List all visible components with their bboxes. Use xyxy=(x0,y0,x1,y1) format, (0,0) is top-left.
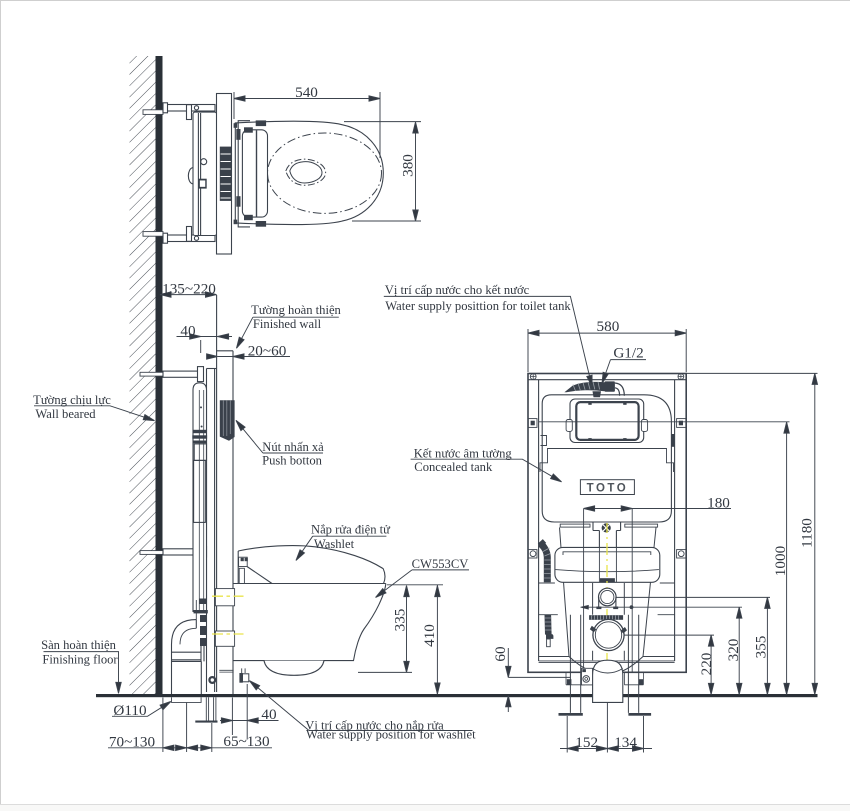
svg-text:1000: 1000 xyxy=(772,545,789,576)
svg-text:Water supply position for wash: Water supply position for washlet xyxy=(306,728,476,742)
svg-text:355: 355 xyxy=(753,636,770,659)
svg-text:Washlet: Washlet xyxy=(314,537,355,551)
svg-text:Nút nhấn xả: Nút nhấn xả xyxy=(262,440,324,454)
svg-text:1180: 1180 xyxy=(799,518,816,548)
svg-text:60: 60 xyxy=(492,646,509,662)
svg-text:Nắp rửa điện tử: Nắp rửa điện tử xyxy=(311,523,391,537)
svg-text:220: 220 xyxy=(698,652,715,675)
svg-text:Ø110: Ø110 xyxy=(113,702,147,719)
svg-text:Tường chịu lực: Tường chịu lực xyxy=(33,393,111,407)
svg-text:40: 40 xyxy=(261,706,277,723)
svg-text:Concealed tank: Concealed tank xyxy=(414,460,493,474)
svg-text:20~60: 20~60 xyxy=(248,343,287,360)
svg-text:65~130: 65~130 xyxy=(223,733,270,750)
svg-text:410: 410 xyxy=(421,624,438,647)
svg-text:Vị trí cấp nước cho kết nước: Vị trí cấp nước cho kết nước xyxy=(385,283,530,297)
svg-text:Finishing floor: Finishing floor xyxy=(42,653,118,667)
svg-text:152: 152 xyxy=(575,734,598,751)
svg-text:380: 380 xyxy=(400,154,417,177)
svg-text:Wall beared: Wall beared xyxy=(35,407,96,421)
svg-text:Finished wall: Finished wall xyxy=(253,317,322,331)
svg-text:320: 320 xyxy=(725,638,742,661)
svg-text:335: 335 xyxy=(392,609,409,632)
svg-text:134: 134 xyxy=(614,734,637,751)
svg-text:G1/2: G1/2 xyxy=(613,345,643,362)
svg-text:70~130: 70~130 xyxy=(109,734,156,751)
svg-text:Sàn hoàn thiện: Sàn hoàn thiện xyxy=(41,638,117,652)
svg-text:CW553CV: CW553CV xyxy=(412,557,469,571)
svg-text:Kết nước âm tường: Kết nước âm tường xyxy=(414,446,513,460)
svg-text:Push botton: Push botton xyxy=(262,454,323,468)
svg-text:540: 540 xyxy=(295,84,318,101)
svg-text:40: 40 xyxy=(180,323,196,340)
svg-text:580: 580 xyxy=(597,318,620,335)
svg-text:180: 180 xyxy=(707,494,730,511)
svg-text:Tường hoàn thiện: Tường hoàn thiện xyxy=(251,303,341,317)
svg-text:Water supply posittion for toi: Water supply posittion for toilet tank xyxy=(385,299,571,313)
svg-text:135~220: 135~220 xyxy=(162,281,216,298)
svg-text:TOTO: TOTO xyxy=(587,483,629,495)
